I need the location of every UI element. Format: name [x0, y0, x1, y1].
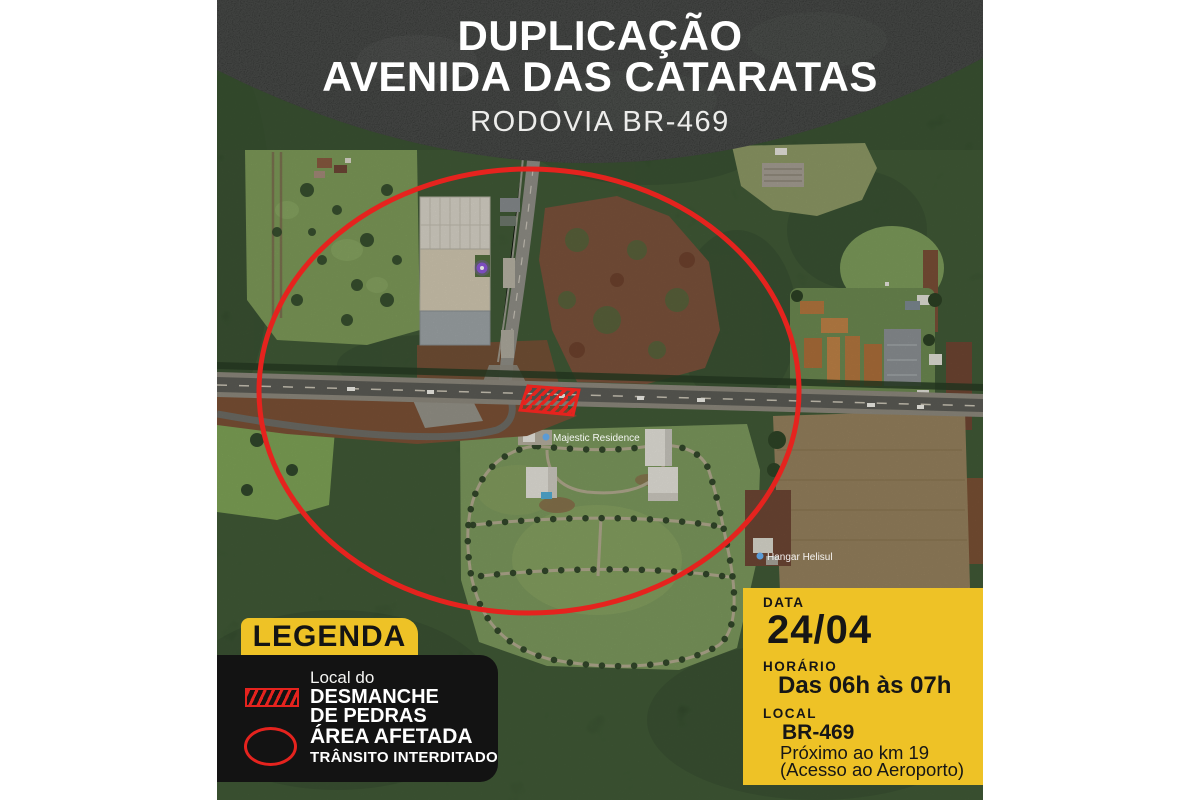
location-detail-2: (Acesso ao Aeroporto): [780, 759, 964, 781]
residence-label: Majestic Residence: [553, 433, 640, 444]
legend-title-tab: LEGENDA: [241, 618, 418, 655]
location-label: LOCAL: [763, 706, 817, 721]
legend-title: LEGENDA: [253, 620, 407, 654]
schedule-info-panel: DATA 24/04 HORÁRIO Das 06h às 07h LOCAL …: [743, 588, 983, 785]
helisul-label: Hangar Helisul: [767, 552, 833, 563]
hatched-area-swatch-icon: [245, 688, 299, 707]
poi-icon: [757, 553, 764, 560]
announcement-poster: Majestic Residence Hangar Helisul DUPLI: [217, 0, 983, 800]
date-value: 24/04: [767, 608, 872, 653]
title-line-1: DUPLICAÇÃO: [217, 15, 983, 56]
stone-demolition-site-marker: [520, 386, 579, 415]
legend-item1-line1: Local do: [310, 668, 374, 688]
legend-item2-line1: ÁREA AFETADA: [310, 725, 473, 749]
page: Majestic Residence Hangar Helisul DUPLI: [0, 0, 1200, 800]
time-value: Das 06h às 07h: [778, 672, 951, 700]
title-line-2: AVENIDA DAS CATARATAS: [217, 56, 983, 97]
poster-title-block: DUPLICAÇÃO AVENIDA DAS CATARATAS RODOVIA…: [217, 15, 983, 139]
poi-icon: [543, 434, 550, 441]
legend-panel: Local do DESMANCHE DE PEDRAS ÁREA AFETAD…: [217, 655, 498, 782]
circle-area-swatch-icon: [244, 727, 297, 766]
subtitle: RODOVIA BR-469: [217, 106, 983, 139]
legend-item2-line2: TRÂNSITO INTERDITADO: [310, 749, 498, 766]
